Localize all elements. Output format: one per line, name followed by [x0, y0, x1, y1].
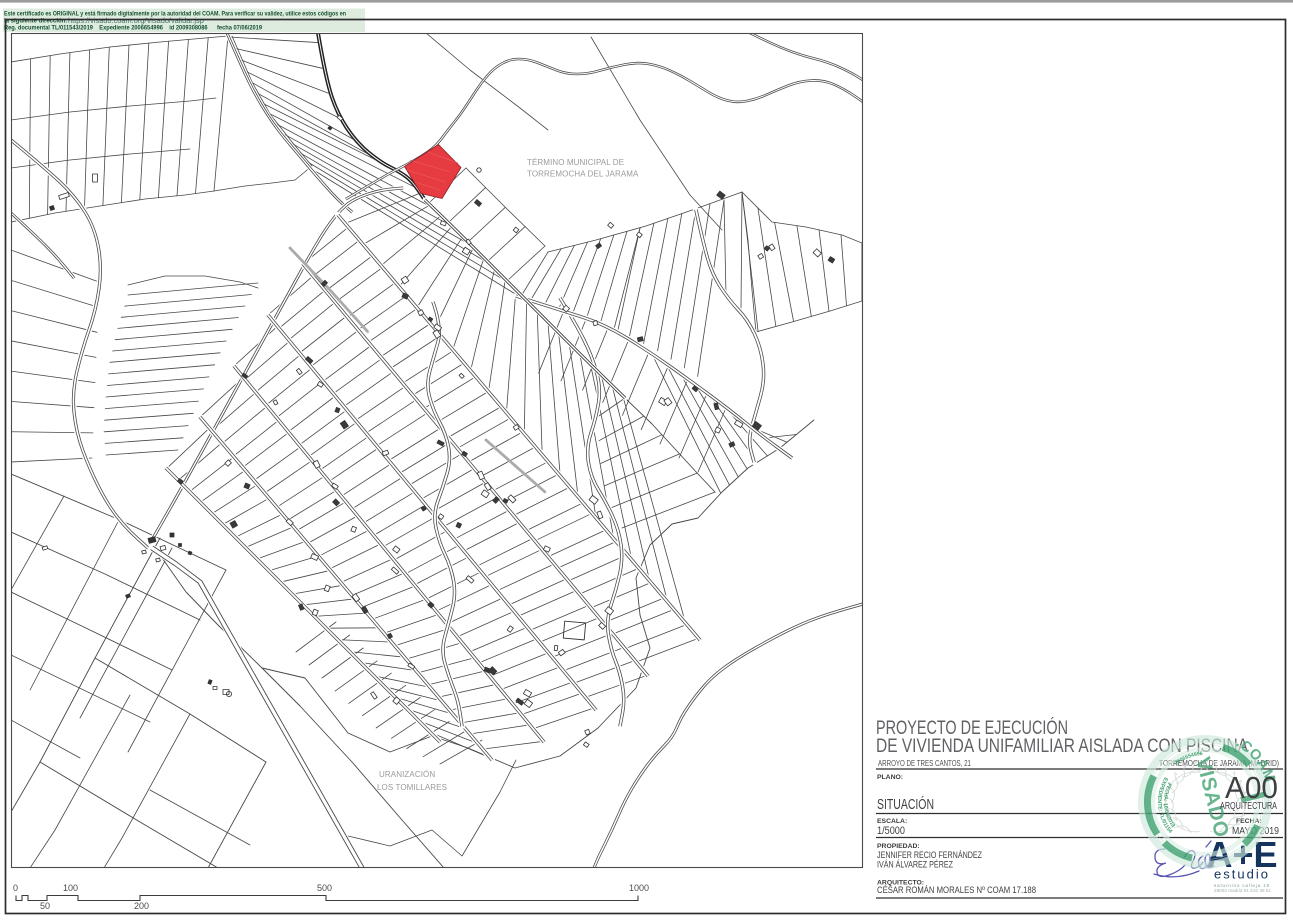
svg-text:Reg. documental TL/011543/201: Reg. documental TL/011543/2019 Expedient…	[4, 26, 263, 32]
svg-text:PLANO:: PLANO:	[877, 774, 903, 781]
svg-text:28002 madrid 91 510 48 61: 28002 madrid 91 510 48 61	[1214, 888, 1271, 893]
svg-text:PROPIEDAD:: PROPIEDAD:	[877, 843, 920, 850]
svg-text:ARROYO DE TRES CANTOS, 21: ARROYO DE TRES CANTOS, 21	[878, 758, 971, 768]
svg-text:URANIZACIÓN: URANIZACIÓN	[379, 770, 435, 779]
svg-text:200: 200	[134, 901, 149, 911]
svg-text:ESCALA:: ESCALA:	[877, 818, 907, 825]
svg-text:A00: A00	[1225, 770, 1278, 805]
svg-text:100: 100	[63, 883, 78, 893]
svg-text:IVÁN ÁLVAREZ PÉREZ: IVÁN ÁLVAREZ PÉREZ	[877, 860, 953, 870]
svg-text:JENNIFER RECIO FERNÁNDEZ: JENNIFER RECIO FERNÁNDEZ	[877, 850, 982, 860]
svg-text:ARQUITECTURA: ARQUITECTURA	[1220, 801, 1277, 812]
svg-text:1000: 1000	[629, 883, 649, 893]
svg-text:SITUACIÓN: SITUACIÓN	[877, 796, 934, 813]
svg-text:1/5000: 1/5000	[877, 825, 905, 837]
svg-text:TORREMOCHA DEL JARAMA: TORREMOCHA DEL JARAMA	[527, 170, 639, 179]
svg-text:500: 500	[317, 883, 332, 893]
svg-text:TÉRMINO MUNICIPAL DE: TÉRMINO MUNICIPAL DE	[527, 158, 624, 167]
svg-text:estudio: estudio	[1214, 867, 1272, 882]
svg-text:0: 0	[13, 883, 18, 893]
svg-text:https://visado.coam.org/Visado: https://visado.coam.org/Visado/validar.j…	[68, 16, 204, 25]
svg-text:CÉSAR ROMÁN MORALES Nº COAM 17: CÉSAR ROMÁN MORALES Nº COAM 17.188	[877, 885, 1036, 895]
svg-text:50: 50	[40, 901, 50, 911]
svg-text:LOS TOMILLARES: LOS TOMILLARES	[377, 783, 447, 792]
